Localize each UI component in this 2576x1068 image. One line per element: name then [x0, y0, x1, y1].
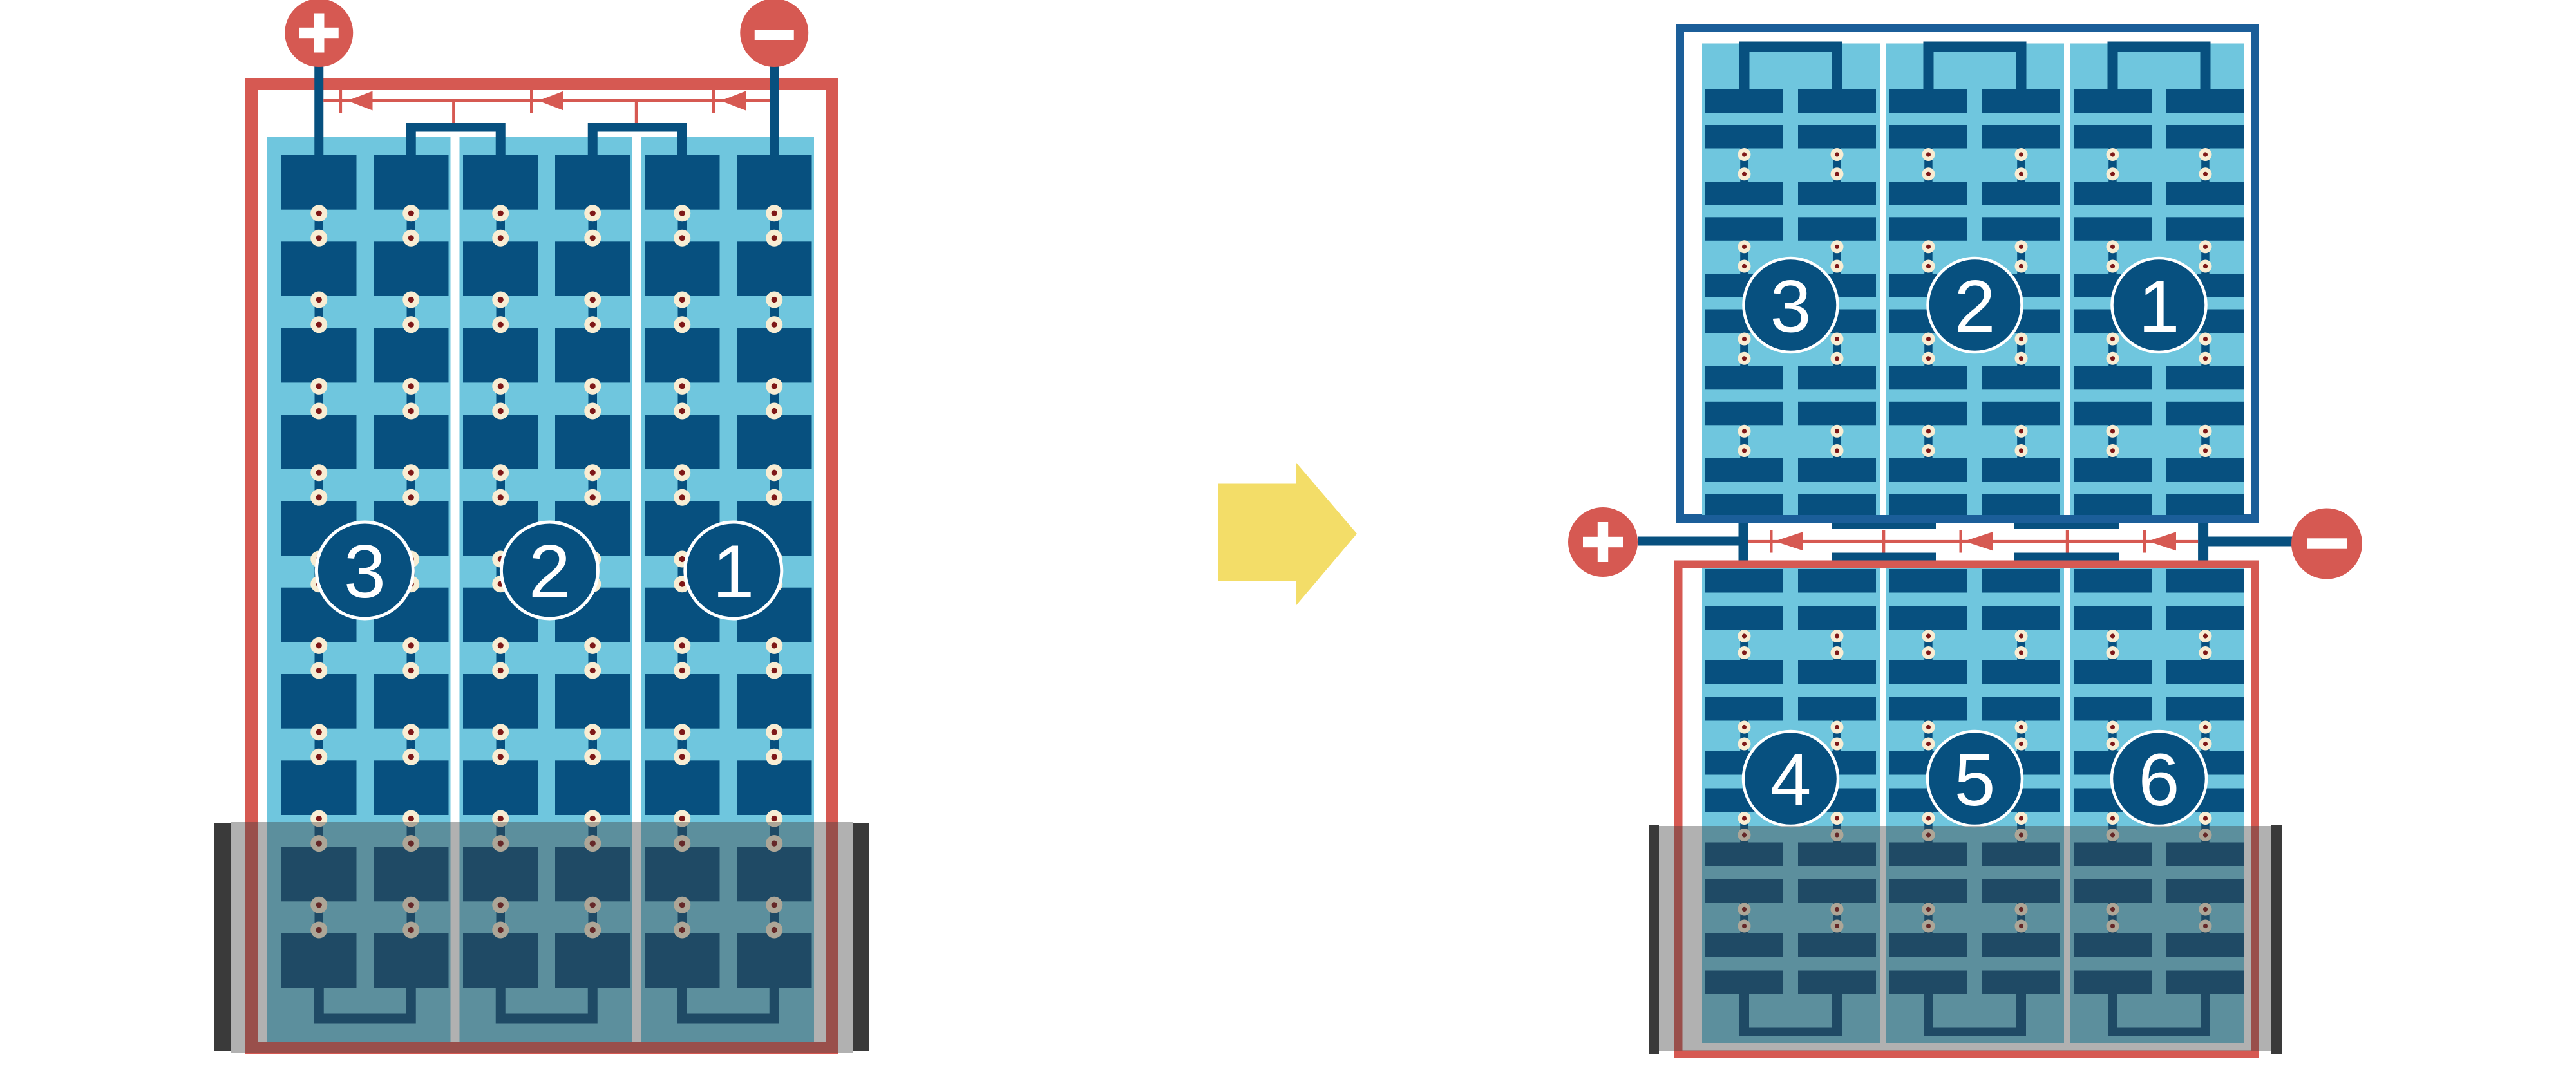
svg-text:3: 3 [344, 529, 386, 614]
svg-text:2: 2 [1955, 265, 1996, 348]
svg-text:3: 3 [1770, 265, 1812, 348]
svg-text:1: 1 [712, 529, 754, 614]
svg-text:4: 4 [1770, 739, 1812, 821]
svg-text:1: 1 [2139, 265, 2180, 348]
svg-text:2: 2 [529, 529, 571, 614]
svg-text:6: 6 [2139, 739, 2180, 821]
svg-text:5: 5 [1955, 739, 1996, 821]
